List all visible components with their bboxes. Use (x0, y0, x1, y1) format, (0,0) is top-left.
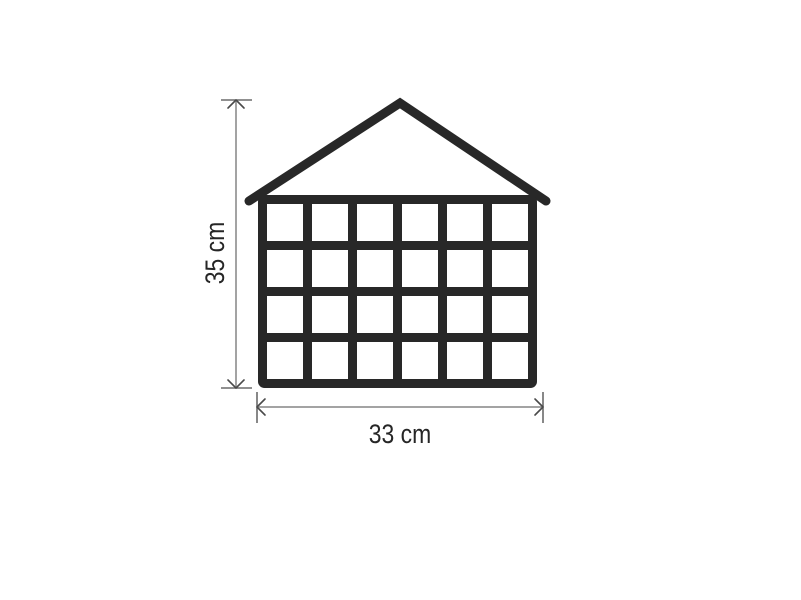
width-dimension-label: 33 cm (369, 419, 431, 449)
roof-outline (249, 103, 546, 201)
window-grid (263, 200, 533, 384)
width-dimension: 33 cm (257, 392, 543, 449)
dimension-drawing: 35 cm 33 cm (0, 0, 801, 600)
height-dimension: 35 cm (200, 100, 252, 388)
diagram-canvas: 35 cm 33 cm (0, 0, 801, 600)
house-outline (249, 103, 546, 384)
height-dimension-label: 35 cm (200, 222, 230, 284)
